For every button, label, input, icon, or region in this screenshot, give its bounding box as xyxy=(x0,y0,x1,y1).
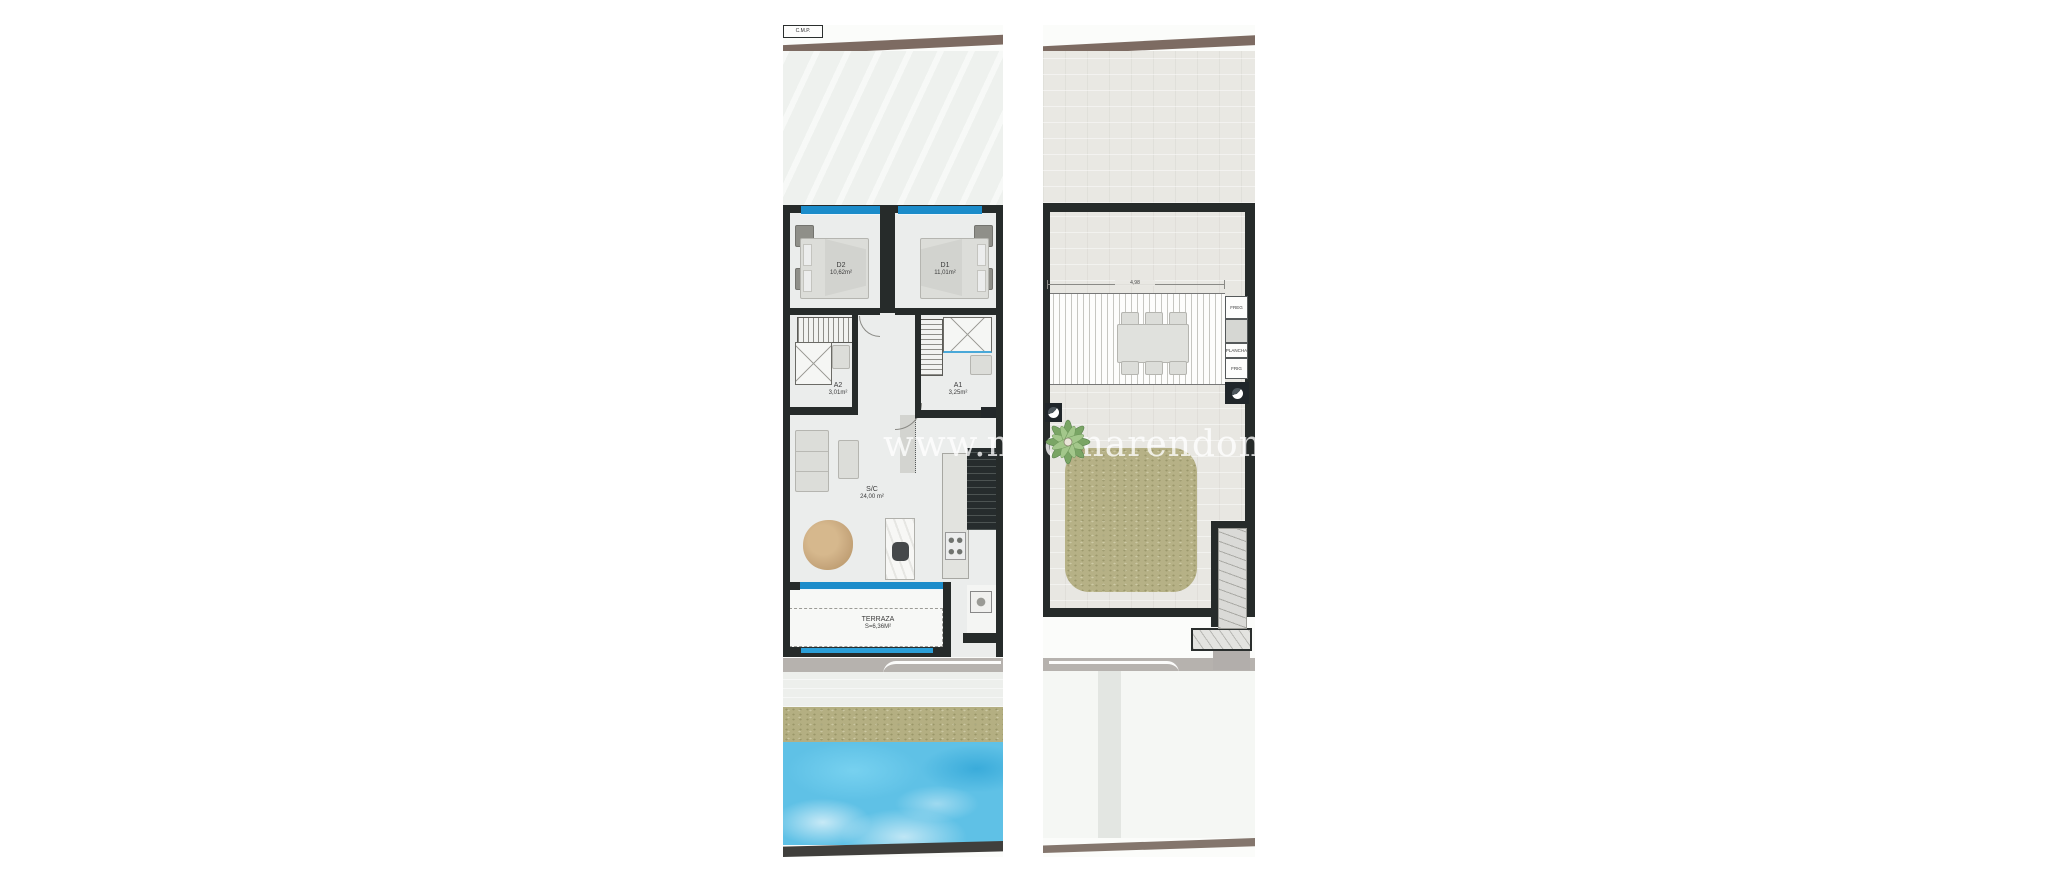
room-area: 3,01m² xyxy=(815,390,861,398)
room-area: 24,00 m² xyxy=(847,494,897,502)
room-label-d2: D2 10,62m² xyxy=(813,261,869,278)
room-code: A2 xyxy=(815,381,861,390)
window-bedroom-d1 xyxy=(898,206,982,215)
grass-band xyxy=(783,707,1003,742)
kitchen-island xyxy=(885,518,915,580)
laundry-room xyxy=(967,585,996,633)
shower-tray xyxy=(943,317,992,353)
wall-segment xyxy=(1043,608,1220,617)
pillow xyxy=(977,270,986,292)
exterior-staircase xyxy=(1218,528,1247,629)
room-area: 11,01m² xyxy=(917,270,973,278)
meter-box xyxy=(981,407,996,418)
floorplan-sheet: C.M.P. D2 10,62m² xyxy=(0,0,2048,880)
room-label-d1: D1 11,01m² xyxy=(917,261,973,278)
path-band xyxy=(783,658,1003,672)
room-area: 3,25m² xyxy=(935,390,981,398)
sliding-door-terrace xyxy=(800,582,943,590)
dimension-tick xyxy=(1047,280,1048,289)
chair xyxy=(1145,361,1163,375)
room-label-terrace: TERRAZA S=6,36M² xyxy=(838,615,918,632)
outdoor-shower-icon xyxy=(1225,382,1249,404)
room-label-a2: A2 3,01m² xyxy=(815,381,861,398)
closet-cmp-label: C.M.P. xyxy=(796,28,811,34)
wall-segment xyxy=(1211,521,1218,627)
chair xyxy=(1169,361,1187,375)
floor-plan-solarium: 4,98 FREG PLANCHA FRIG xyxy=(1043,25,1255,857)
shower-tray xyxy=(795,342,832,385)
dimension-label: 4,98 xyxy=(1115,280,1155,286)
street-paving-top xyxy=(1043,51,1255,203)
room-area: 10,62m² xyxy=(813,270,869,278)
wall-segment xyxy=(963,633,1003,643)
shower-glyph xyxy=(1232,388,1243,399)
room-label-a1: A1 3,25m² xyxy=(935,381,981,398)
room-code: D1 xyxy=(917,261,973,270)
dining-table-round xyxy=(803,520,853,570)
room-code: S/C xyxy=(847,485,897,494)
swimming-pool xyxy=(783,742,1003,845)
island-sink xyxy=(892,542,909,561)
outdoor-fridge-label: FRIG xyxy=(1231,366,1242,371)
wall-segment xyxy=(1043,203,1255,212)
cooktop xyxy=(945,532,966,560)
path-curve xyxy=(883,661,1001,674)
watermark-text: www.medinarendom.com xyxy=(883,424,1003,465)
window-bedroom-d2 xyxy=(801,206,880,215)
road-strip-bottom xyxy=(1043,838,1255,853)
washing-machine xyxy=(970,591,992,613)
wall-segment xyxy=(943,582,951,657)
path-curve xyxy=(1049,661,1179,673)
sofa xyxy=(795,430,829,492)
kitchen-counter xyxy=(942,453,969,579)
stair-exit-landing xyxy=(1191,628,1252,651)
room-code: TERRAZA xyxy=(838,615,918,624)
outdoor-fridge-box: FRIG xyxy=(1225,358,1248,379)
washbasin xyxy=(832,345,850,369)
room-area: S=6,36M² xyxy=(838,624,918,632)
wall-segment xyxy=(895,308,996,315)
pillow xyxy=(803,270,812,292)
palm-tree-icon xyxy=(1043,413,1097,471)
linen-closet xyxy=(919,319,943,376)
garden-paving xyxy=(783,672,1003,707)
outdoor-sink-box: FREG xyxy=(1225,296,1248,319)
washbasin xyxy=(970,355,992,375)
wall-segment xyxy=(790,308,880,315)
dining-table xyxy=(1117,324,1189,363)
wall-segment xyxy=(790,582,800,590)
pergola xyxy=(1047,293,1225,385)
dimension-tick xyxy=(1224,280,1225,289)
street-paving-bottom xyxy=(1043,671,1255,838)
wall-segment xyxy=(852,315,858,415)
wardrobe xyxy=(797,317,855,343)
room-code: D2 xyxy=(813,261,869,270)
floor-plan-apartment: C.M.P. D2 10,62m² xyxy=(783,25,1003,857)
driveway-paving xyxy=(783,51,1003,207)
wall-segment xyxy=(915,315,921,418)
terrace-glass-rail xyxy=(801,648,933,653)
outdoor-grill-box: PLANCHA xyxy=(1225,343,1248,358)
room-label-sc: S/C 24,00 m² xyxy=(847,485,897,502)
wall-segment xyxy=(790,407,858,415)
chair xyxy=(1121,361,1139,375)
wall-segment xyxy=(1211,521,1255,528)
pillow xyxy=(977,244,986,266)
outdoor-counter xyxy=(1225,319,1248,343)
room-code: A1 xyxy=(935,381,981,390)
wall-segment xyxy=(783,205,790,657)
closet-cmp-box: C.M.P. xyxy=(783,25,823,38)
tv-sideboard xyxy=(838,440,859,479)
wall-segment xyxy=(880,205,895,313)
pillow xyxy=(803,244,812,266)
outdoor-grill-label: PLANCHA xyxy=(1226,348,1247,353)
outdoor-sink-label: FREG xyxy=(1230,305,1243,310)
